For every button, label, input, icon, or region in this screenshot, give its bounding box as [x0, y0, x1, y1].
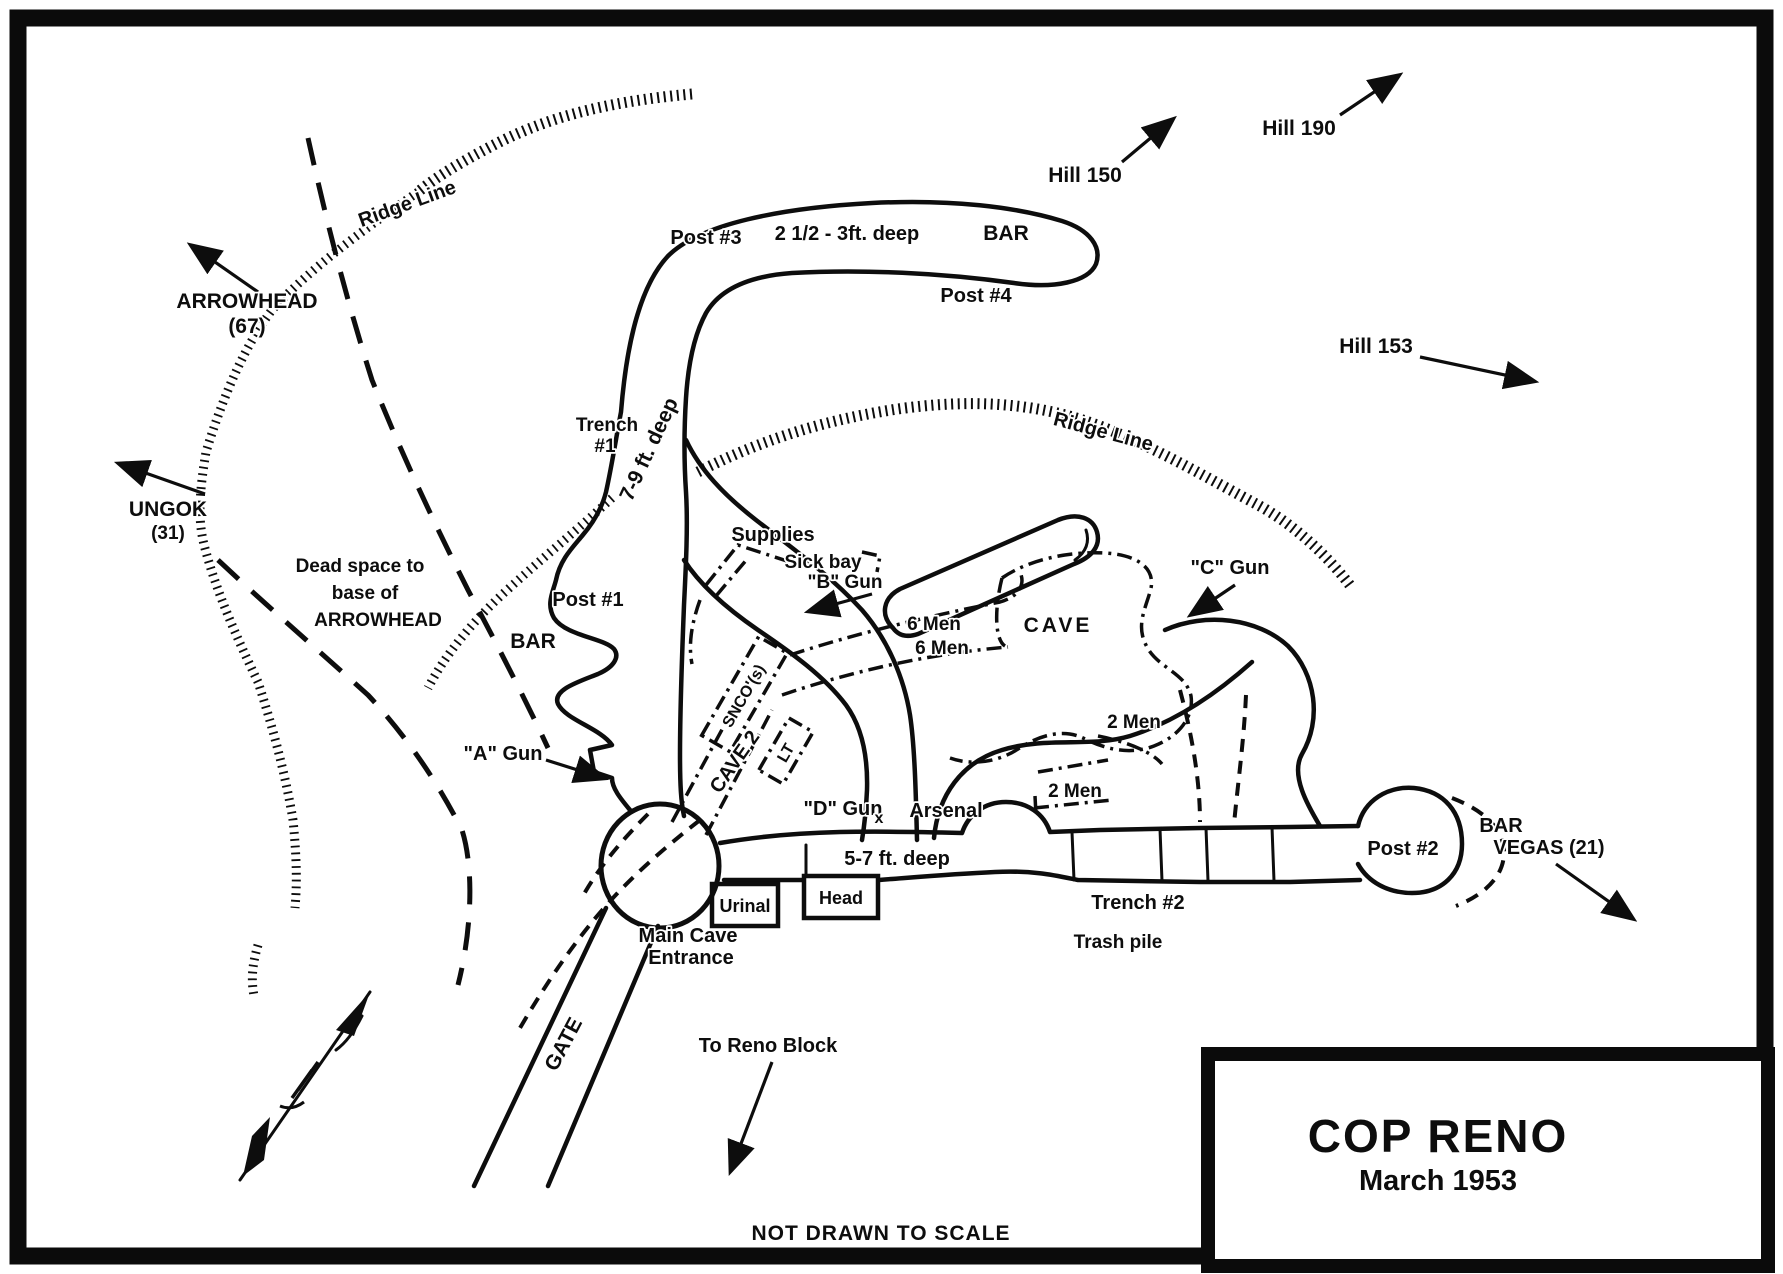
cave-2-label: CAVE 2 [706, 727, 765, 798]
dead-space-label-3: ARROWHEAD [314, 610, 442, 631]
urinal-label: Urinal [719, 896, 770, 916]
c-gun-label: "C" Gun [1191, 557, 1270, 579]
map-title: COP RENO [1308, 1110, 1569, 1162]
a-gun-label: "A" Gun [464, 743, 543, 765]
hill-153-label: Hill 153 [1339, 335, 1413, 358]
d-gun-x-mark: x [875, 810, 884, 827]
supplies-connector [690, 600, 700, 664]
vegas-arrow [1556, 864, 1632, 918]
d-gun-label: "D" Gun [804, 798, 883, 820]
cop-reno-map: Ridge Line Ridge Line ARROWHEAD (67) UNG… [0, 0, 1783, 1274]
north-n-glyph [292, 1062, 318, 1098]
post-3-label: Post #3 [670, 227, 741, 249]
sick-bay-corner [862, 552, 880, 572]
post-1-label: Post #1 [552, 589, 623, 611]
dead-space-label-1: Dead space to [296, 556, 425, 577]
supplies-label: Supplies [731, 524, 814, 546]
post-4-label: Post #4 [940, 285, 1012, 307]
arrowhead-elev-label: (67) [228, 315, 265, 338]
sick-bay-label: Sick bay [784, 552, 862, 573]
cave-shaft-2 [1234, 695, 1246, 824]
hill-150-arrow [1122, 120, 1172, 162]
bar-west-label: BAR [510, 630, 556, 653]
road-center-dashes [520, 820, 700, 1028]
dead-space-label-2: base of [332, 583, 399, 604]
hill-153-arrow [1420, 357, 1533, 381]
ridge-line-left-label: Ridge Line [356, 176, 460, 232]
trench-1-label-1: Trench [576, 415, 638, 436]
c-gun-arrow [1192, 585, 1235, 614]
map-canvas: Ridge Line Ridge Line ARROWHEAD (67) UNG… [0, 0, 1783, 1274]
six-men-label-1: 6 Men [907, 614, 961, 635]
ridge-line-right-label: Ridge Line [1051, 408, 1155, 456]
to-reno-arrow [731, 1062, 772, 1170]
cave-main-left-edge [997, 578, 1005, 646]
cave-label: CAVE [1024, 614, 1093, 637]
main-cave-label-2: Entrance [648, 947, 734, 969]
b-gun-label: "B" Gun [807, 572, 882, 593]
arsenal-label: Arsenal [909, 800, 982, 822]
title-box: COP RENO March 1953 [1208, 1054, 1768, 1266]
crest-dashed-line [308, 138, 548, 748]
scale-note-label: NOT DRAWN TO SCALE [751, 1222, 1010, 1245]
trench-2-depth-label: 5-7 ft. deep [844, 848, 950, 870]
ridge-left-hachure-upper [418, 94, 692, 192]
map-date: March 1953 [1359, 1165, 1517, 1197]
vegas-label-1: BAR [1479, 815, 1523, 837]
gate-label: GATE [540, 1014, 587, 1075]
main-cave-label-1: Main Cave [639, 925, 738, 947]
trench-2-label: Trench #2 [1091, 892, 1184, 914]
ridge-left-hachure-tail [252, 945, 258, 996]
trash-pile-label: Trash pile [1074, 932, 1163, 953]
trench-1-depth-label: 7-9 ft. deep [615, 394, 683, 504]
ungok-direction-arrow [120, 464, 205, 494]
arrowhead-label: ARROWHEAD [176, 290, 317, 313]
two-men-label-2: 2 Men [1048, 781, 1102, 802]
head-label: Head [819, 888, 863, 908]
north-arrow [240, 992, 370, 1180]
six-men-label-2: 6 Men [915, 638, 969, 659]
snco-label: SNCO'(s) [720, 662, 770, 731]
hill-190-arrow [1340, 76, 1398, 115]
trench-1-outline [550, 202, 1097, 816]
hill-190-label: Hill 190 [1262, 117, 1336, 140]
bar-north-label: BAR [983, 222, 1029, 245]
gate-road-left [474, 908, 606, 1186]
hill-150-label: Hill 150 [1048, 164, 1122, 187]
ungok-elev-label: (31) [151, 523, 185, 544]
trench-1-label-2: #1 [594, 436, 616, 457]
to-reno-label: To Reno Block [699, 1035, 838, 1057]
arrowhead-direction-arrow [192, 246, 258, 292]
main-cave-entrance-oval [601, 804, 719, 928]
two-men-label-1: 2 Men [1107, 712, 1161, 733]
vegas-label-2: VEGAS (21) [1493, 837, 1604, 859]
post-2-label: Post #2 [1367, 838, 1438, 860]
ungok-label: UNGOK [129, 498, 207, 521]
loop-depth-label: 2 1/2 - 3ft. deep [775, 223, 920, 245]
supplies-pocket [706, 545, 790, 596]
